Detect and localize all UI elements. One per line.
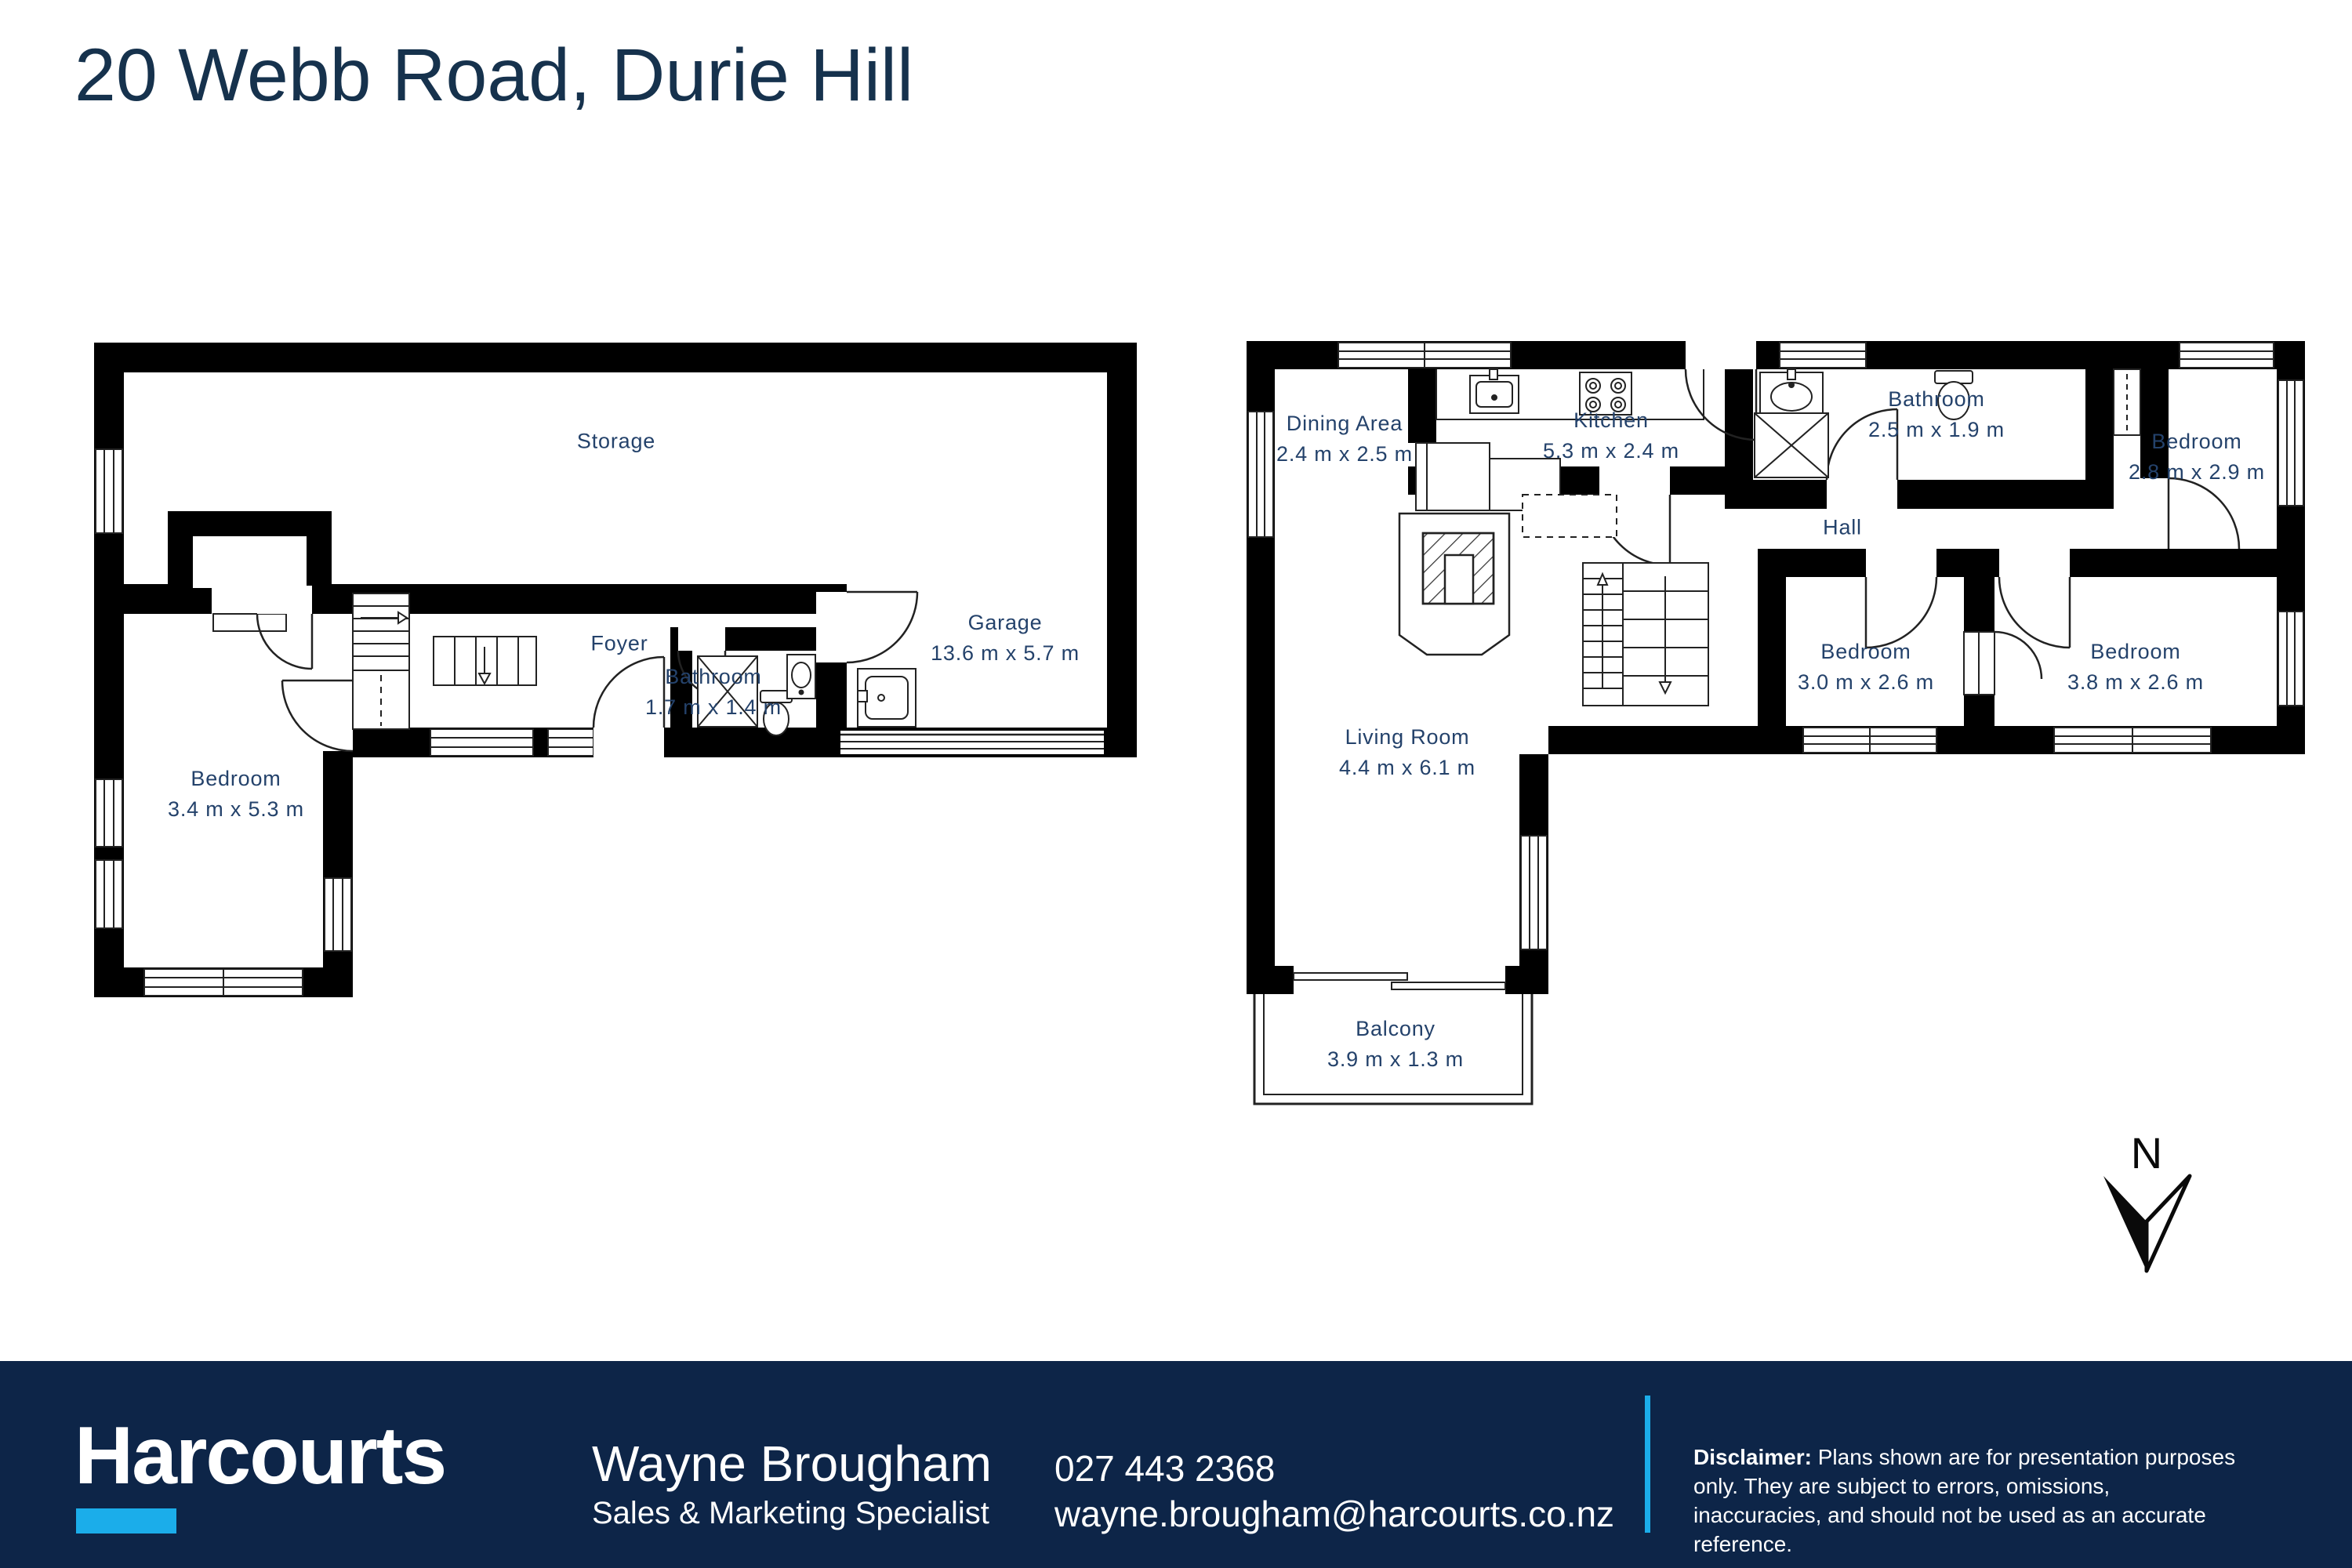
room-label-balcony: Balcony 3.9 m x 1.3 m bbox=[1327, 1014, 1464, 1075]
bath-sink-icon bbox=[1760, 369, 1823, 418]
north-arrow-icon bbox=[2085, 1171, 2211, 1280]
room-label-garage: Garage 13.6 m x 5.7 m bbox=[931, 608, 1080, 669]
linen-closet bbox=[2114, 369, 2140, 435]
room-label-bedroom-2-8: Bedroom 2.8 m x 2.9 m bbox=[2129, 426, 2265, 488]
door-openings bbox=[1599, 341, 2169, 577]
harcourts-logo: Harcourts bbox=[74, 1410, 445, 1503]
fireplace-icon bbox=[1399, 514, 1509, 655]
room-label-storage: Storage bbox=[577, 426, 655, 456]
compass: N bbox=[2085, 1127, 2211, 1284]
page-title: 20 Webb Road, Durie Hill bbox=[74, 33, 913, 118]
agent-phone: 027 443 2368 bbox=[1054, 1447, 1275, 1490]
disclaimer-label: Disclaimer: bbox=[1693, 1445, 1812, 1469]
room-label-foyer: Foyer bbox=[590, 628, 648, 659]
kitchen-sink-icon bbox=[1470, 369, 1519, 413]
laundry-tub-icon bbox=[858, 669, 916, 727]
upper-floor-plan: Dining Area 2.4 m x 2.5 m Kitchen 5.3 m … bbox=[1247, 341, 2305, 1109]
floor-plan-flyer: { "page": { "title": "20 Webb Road, Duri… bbox=[0, 0, 2352, 1568]
stairs-icon bbox=[1583, 563, 1708, 706]
closet bbox=[1964, 632, 1994, 695]
room-label-bathroom-upper: Bathroom 2.5 m x 1.9 m bbox=[1868, 384, 2005, 445]
sliding-door bbox=[1294, 966, 1505, 994]
sink-icon bbox=[787, 655, 815, 699]
harcourts-logo-underline bbox=[76, 1508, 176, 1534]
bath-shower-icon bbox=[1755, 413, 1828, 477]
footer-divider bbox=[1645, 1396, 1650, 1533]
room-label-bedroom-3-8: Bedroom 3.8 m x 2.6 m bbox=[2067, 637, 2204, 698]
room-label-bedroom-ground: Bedroom 3.4 m x 5.3 m bbox=[168, 764, 304, 825]
room-label-bedroom-3-0: Bedroom 3.0 m x 2.6 m bbox=[1798, 637, 1934, 698]
disclaimer-text: Disclaimer: Plans shown are for presenta… bbox=[1693, 1443, 2242, 1559]
room-label-bathroom-ground: Bathroom 1.7 m x 1.4 m bbox=[645, 662, 782, 723]
fireplace-recess bbox=[193, 536, 307, 631]
room-label-hall: Hall bbox=[1823, 512, 1862, 543]
garage-door bbox=[840, 731, 1104, 754]
agent-name: Wayne Brougham bbox=[592, 1435, 992, 1493]
room-label-living-room: Living Room 4.4 m x 6.1 m bbox=[1339, 722, 1475, 783]
room-label-kitchen: Kitchen 5.3 m x 2.4 m bbox=[1543, 405, 1679, 466]
agent-email: wayne.brougham@harcourts.co.nz bbox=[1054, 1493, 1614, 1535]
room-label-dining: Dining Area 2.4 m x 2.5 m bbox=[1276, 408, 1413, 470]
agent-title: Sales & Marketing Specialist bbox=[592, 1496, 989, 1531]
ground-floor-plan: Storage Foyer Bathroom 1.7 m x 1.4 m Gar… bbox=[94, 343, 1137, 997]
